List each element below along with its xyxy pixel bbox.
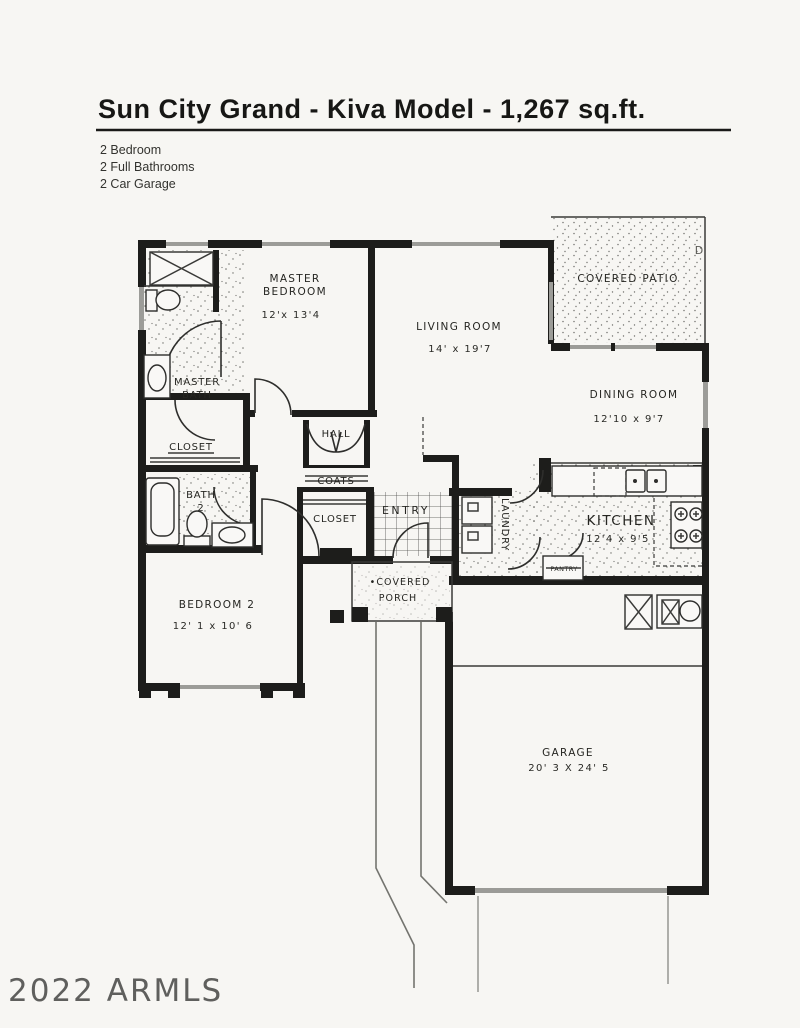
porch-floor (354, 564, 450, 619)
dims-kitchen: 12'4 x 9'5 (586, 534, 650, 545)
label-bath2-2: 2 (197, 503, 204, 514)
label-covered-porch-1: •COVERED (370, 577, 431, 588)
dims-dining-room: 12'10 x 9'7 (593, 414, 664, 425)
bath2-vanity (212, 523, 253, 547)
floor-plan-page: Sun City Grand - Kiva Model - 1,267 sq.f… (0, 0, 800, 1028)
entry-tile-floor (372, 492, 452, 556)
utility-sink (657, 595, 702, 628)
dims-living-room: 14' x 19'7 (428, 344, 492, 355)
label-dining-room: DINING ROOM (590, 389, 679, 401)
label-pantry: PANTRY (550, 565, 577, 573)
walkway (376, 622, 447, 988)
label-master-bedroom-1: MASTER (269, 273, 320, 285)
bath2-tub (146, 478, 179, 545)
master-vanity (144, 355, 170, 398)
master-shower (150, 252, 213, 285)
page-title: Sun City Grand - Kiva Model - 1,267 sq.f… (98, 94, 646, 124)
label-master-bath-1: MASTER (174, 377, 220, 388)
header: Sun City Grand - Kiva Model - 1,267 sq.f… (96, 94, 731, 191)
master-toilet (146, 290, 180, 311)
driveway (478, 896, 668, 992)
dims-garage: 20' 3 X 24' 5 (528, 763, 609, 774)
bedroom2-door (262, 499, 319, 556)
label-master-bedroom-2: BEDROOM (263, 286, 327, 298)
feature-bathrooms: 2 Full Bathrooms (100, 160, 194, 174)
label-kitchen: KITCHEN (587, 513, 656, 529)
feature-bedrooms: 2 Bedroom (100, 143, 161, 157)
label-laundry: LAUNDRY (499, 498, 510, 551)
feature-garage: 2 Car Garage (100, 177, 176, 191)
dims-master-bedroom: 12'x 13'4 (261, 310, 320, 321)
label-entry: ENTRY (382, 504, 430, 517)
label-coats: COATS (317, 476, 354, 487)
label-bedroom2: BEDROOM 2 (179, 599, 256, 611)
label-master-bath-2: BATH (182, 390, 212, 401)
patio-letter-d: D (695, 244, 703, 257)
master-closet-door (175, 400, 215, 440)
label-master-closet: CLOSET (169, 442, 213, 453)
label-covered-patio: COVERED PATIO (577, 273, 678, 285)
water-heater (625, 595, 652, 629)
label-bath2-1: BATH (186, 490, 216, 501)
master-bedroom-door (255, 379, 291, 415)
label-hall: HALL (322, 429, 351, 440)
label-garage: GARAGE (542, 747, 594, 759)
floor-plan-drawing: Sun City Grand - Kiva Model - 1,267 sq.f… (0, 0, 800, 1028)
label-covered-porch-2: PORCH (379, 593, 418, 604)
watermark: 2022 ARMLS (8, 973, 223, 1009)
label-living-room: LIVING ROOM (416, 321, 502, 333)
dims-bedroom2: 12' 1 x 10' 6 (173, 621, 254, 632)
label-entry-closet: CLOSET (313, 514, 357, 525)
